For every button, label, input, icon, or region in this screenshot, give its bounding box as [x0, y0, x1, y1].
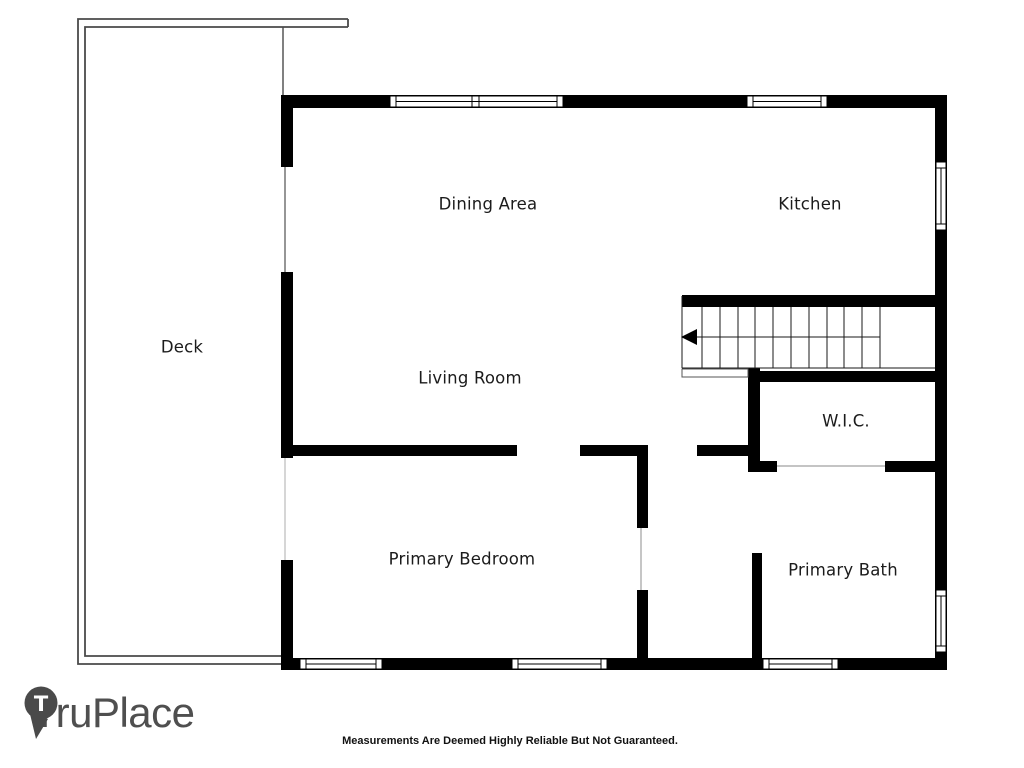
staircase [681, 296, 935, 377]
room-label-living-room: Living Room [418, 369, 522, 388]
wall-living-bedroom-1 [293, 445, 517, 456]
truplace-logo: T TruPlace [24, 686, 195, 734]
wall-left-lower [281, 560, 293, 670]
room-label-kitchen: Kitchen [778, 195, 841, 214]
wall-wic-bottom-left [748, 461, 777, 472]
window [512, 659, 607, 669]
disclaimer-text: Measurements Are Deemed Highly Reliable … [342, 735, 678, 747]
room-label-deck: Deck [161, 338, 203, 357]
wall-wic-left [748, 368, 760, 472]
stairs-direction-arrow-icon [681, 329, 697, 345]
interior-walls [293, 295, 935, 658]
wall-bottom [283, 658, 947, 670]
floor-plan-page: Deck Dining Area Kitchen Living Room W.I… [0, 0, 1024, 768]
room-label-primary-bedroom: Primary Bedroom [389, 550, 536, 569]
stairs-lower-rail [682, 369, 748, 377]
wall-wic-bottom-right [885, 461, 935, 472]
wall-top [283, 95, 947, 108]
room-label-dining-area: Dining Area [439, 195, 538, 214]
deck-outline [78, 19, 348, 664]
window [747, 96, 827, 107]
wall-wic-top [748, 371, 935, 382]
room-label-wic: W.I.C. [822, 412, 870, 431]
wall-left-middle [281, 272, 293, 458]
window [936, 162, 946, 230]
wall-stairs-top [682, 295, 935, 307]
window [936, 590, 946, 652]
map-pin-icon: T [24, 686, 58, 740]
wall-left-upper [281, 95, 293, 167]
window [390, 96, 563, 107]
window [300, 659, 382, 669]
room-label-primary-bath: Primary Bath [788, 561, 898, 580]
windows [300, 96, 946, 669]
wall-bedroom-hall-upper [637, 445, 648, 528]
window [763, 659, 838, 669]
wall-bath-left [752, 553, 762, 658]
logo-letter: T [34, 692, 49, 716]
wall-living-bedroom-3 [697, 445, 760, 456]
wall-bedroom-hall-lower [637, 590, 648, 658]
exterior-walls [281, 95, 947, 670]
